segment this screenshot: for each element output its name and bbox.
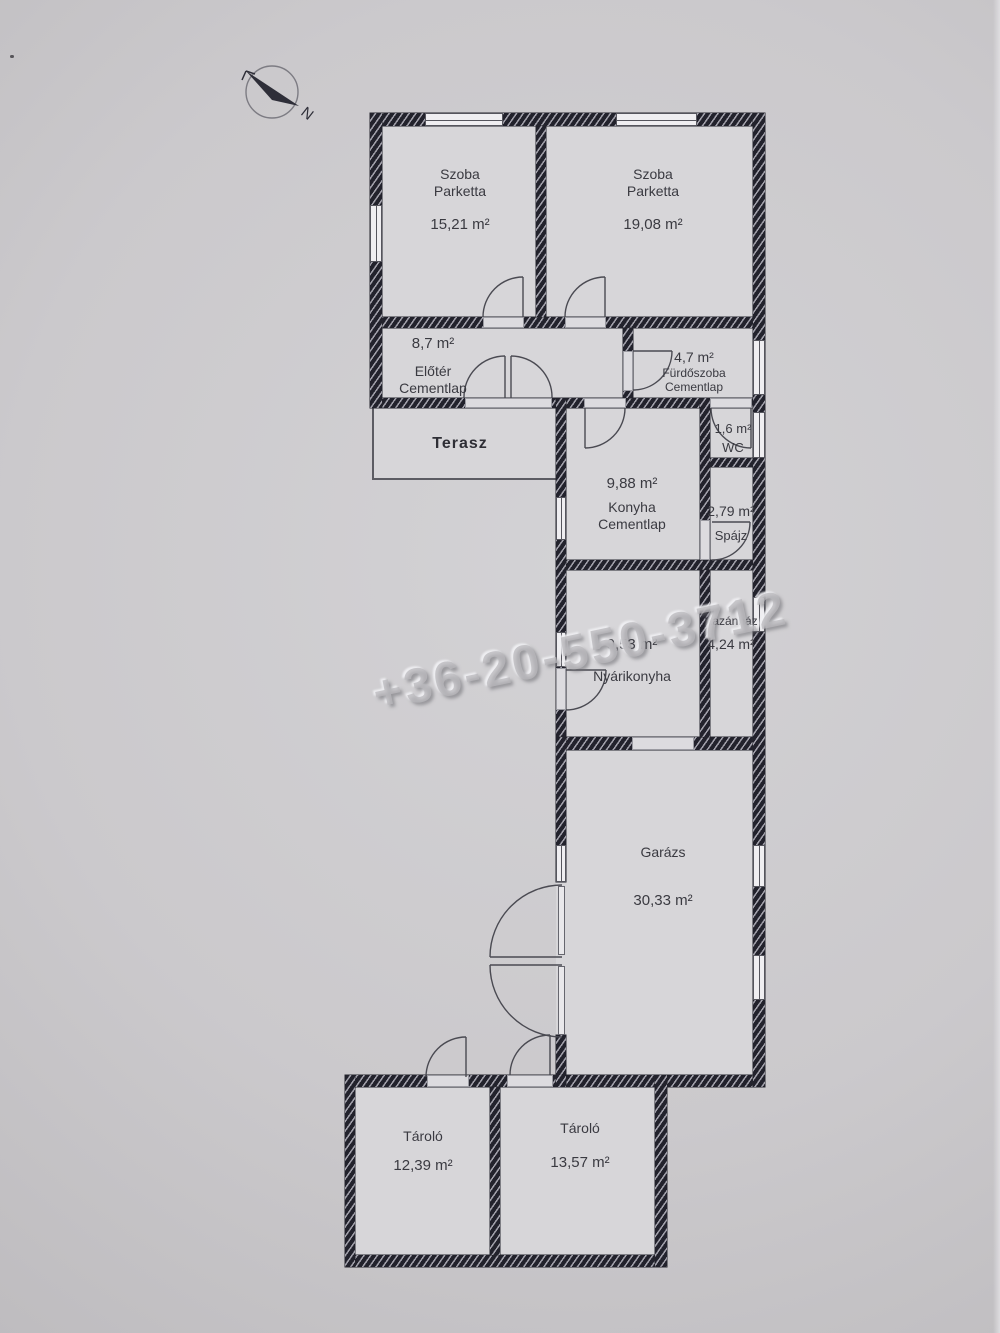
room-name: Terasz [432,434,488,453]
room-area: 12,39 m² [393,1157,452,1175]
room-name: WC [722,440,744,456]
room-area: 2,79 m² [707,503,754,520]
room-label-eloter: 8,7 m² Előtér Cementlap [363,335,503,397]
wall [536,126,546,317]
room-label-garazs: Garázs 30,33 m² [588,844,738,910]
door-opening [508,1076,552,1086]
room-label-furdoszoba: 4,7 m² Fürdőszoba Cementlap [628,349,760,395]
door-arc [426,1037,466,1077]
door-opening [633,738,693,749]
room-label-wc: 1,6 m² WC [703,421,763,455]
door-opening [711,399,751,407]
room-area: 8,7 m² [412,335,455,353]
room-area: 1,6 m² [715,421,752,437]
wall [655,1075,667,1267]
door-opening [484,318,523,327]
room-floor: Cementlap [399,380,467,397]
wall [345,1255,667,1267]
room-area: 4,7 m² [674,349,714,366]
wall [556,1035,566,1087]
window [556,497,566,540]
room-name: Szoba [633,166,673,183]
window [556,845,566,882]
floor-plan-photo: N Szoba Parketta 15,21 m² Szoba Parketta… [0,0,1000,1333]
room-floor: Parketta [434,183,486,200]
window [370,205,382,262]
photo-speck [10,55,14,58]
door-arc [510,1035,550,1075]
room-name: Tároló [560,1120,600,1137]
window [425,113,503,126]
room-name: Spájz [715,528,748,544]
room-area: 19,08 m² [623,216,682,234]
door-opening [428,1076,468,1086]
room-name: Fürdőszoba [662,366,725,380]
compass-north-label: N [298,104,317,124]
window [616,113,697,126]
room-label-tarolo1: Tároló 12,39 m² [348,1128,498,1175]
room-label-spajz: 2,79 m² Spájz [695,503,767,543]
window [753,955,765,1000]
room-name: Szoba [440,166,480,183]
room-name: Tároló [403,1128,443,1145]
room-area: 15,21 m² [430,216,489,234]
room-floor: Cementlap [665,380,723,394]
room-name: Garázs [640,844,685,861]
room-name: Előtér [415,363,452,380]
room-area: 9,88 m² [607,475,658,493]
compass-icon: N [242,66,317,124]
room-name: Konyha [608,499,655,516]
door-opening [585,399,625,407]
garage-door-leaf [558,966,565,1035]
room-label-szoba1: Szoba Parketta 15,21 m² [385,166,535,234]
room-area: 13,57 m² [550,1154,609,1172]
room-label-szoba2: Szoba Parketta 19,08 m² [578,166,728,234]
door-opening [566,318,605,327]
room-label-terasz: Terasz [400,434,520,453]
door-arc [490,885,562,957]
room-area: 30,33 m² [633,892,692,910]
door-arc [490,965,562,1037]
room-label-tarolo2: Tároló 13,57 m² [505,1120,655,1172]
room-floor: Parketta [627,183,679,200]
room-label-konyha: 9,88 m² Konyha Cementlap [567,475,697,533]
door-opening [466,399,551,407]
room-floor: Cementlap [598,516,666,533]
window [753,845,765,887]
garage-door-leaf [558,886,565,955]
wall [345,1075,765,1087]
wall [556,560,765,570]
